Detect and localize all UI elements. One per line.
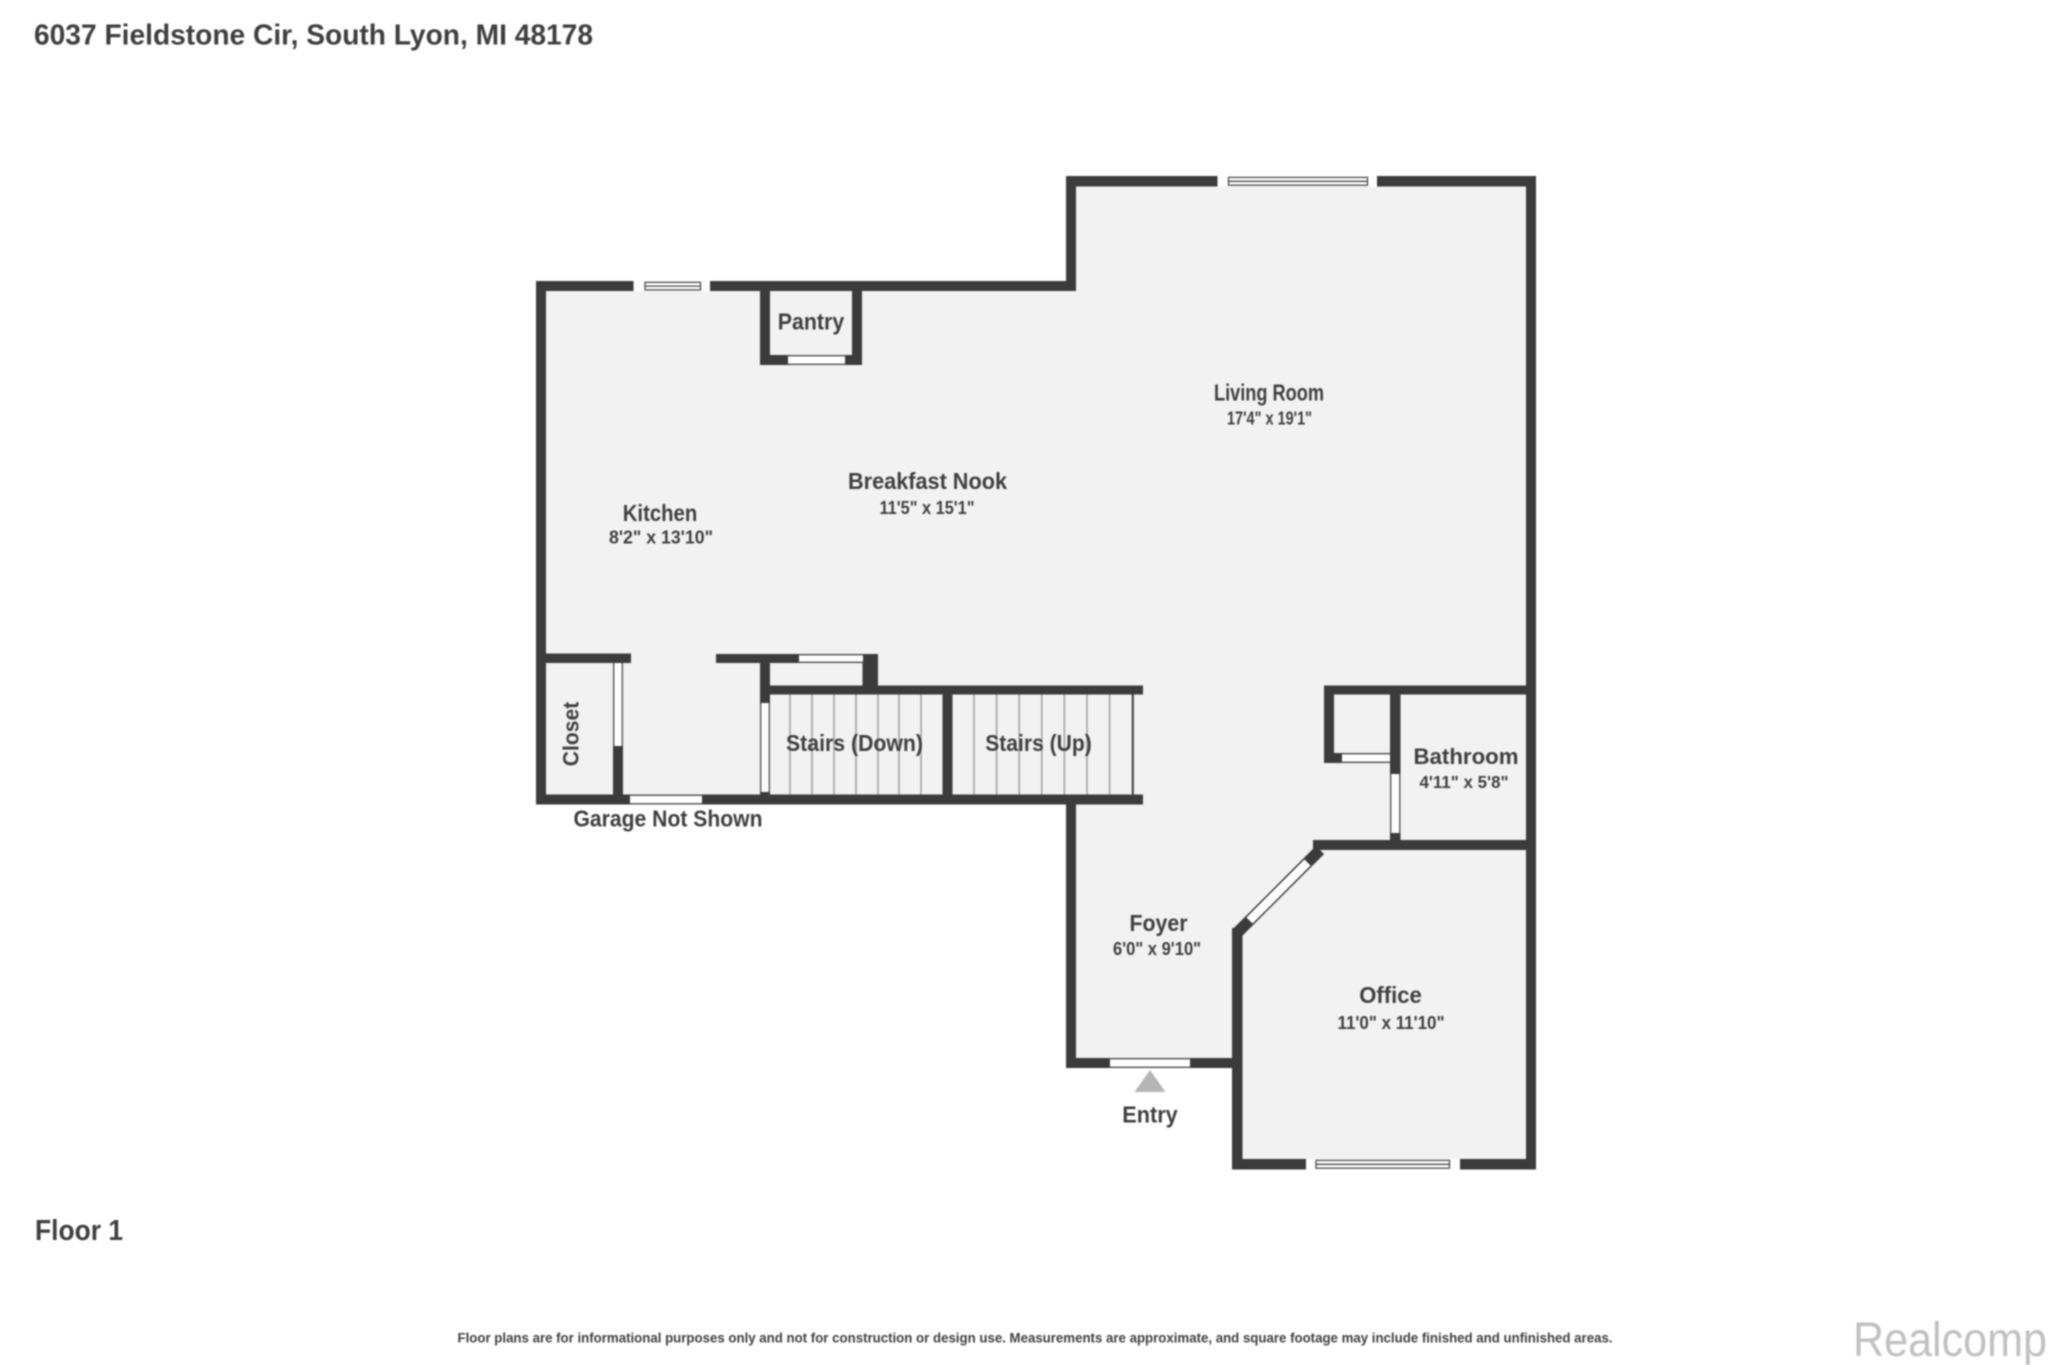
svg-text:Pantry: Pantry — [778, 308, 845, 334]
svg-text:Garage Not Shown: Garage Not Shown — [574, 806, 763, 832]
svg-text:Closet: Closet — [559, 701, 584, 766]
svg-text:Entry: Entry — [1122, 1102, 1178, 1128]
svg-text:Living Room: Living Room — [1214, 380, 1324, 406]
svg-text:Stairs (Up): Stairs (Up) — [985, 730, 1092, 756]
svg-text:Kitchen: Kitchen — [623, 500, 698, 526]
svg-text:8'2" x 13'10": 8'2" x 13'10" — [609, 528, 713, 548]
svg-text:Floor 1: Floor 1 — [35, 1215, 123, 1247]
svg-text:6037 Fieldstone Cir, South Lyo: 6037 Fieldstone Cir, South Lyon, MI 4817… — [34, 20, 593, 52]
svg-text:Bathroom: Bathroom — [1414, 744, 1519, 769]
svg-text:17'4" x 19'1": 17'4" x 19'1" — [1227, 409, 1312, 429]
svg-text:6'0" x 9'10": 6'0" x 9'10" — [1113, 939, 1201, 959]
svg-text:11'5" x 15'1": 11'5" x 15'1" — [880, 498, 975, 518]
svg-text:Breakfast Nook: Breakfast Nook — [848, 468, 1007, 494]
svg-text:11'0" x 11'10": 11'0" x 11'10" — [1338, 1013, 1445, 1033]
svg-text:Realcomp: Realcomp — [1853, 1314, 2047, 1365]
svg-text:Foyer: Foyer — [1130, 910, 1188, 936]
svg-text:Office: Office — [1359, 982, 1422, 1008]
svg-text:4'11" x 5'8": 4'11" x 5'8" — [1420, 772, 1509, 792]
svg-text:Floor plans are for informatio: Floor plans are for informational purpos… — [458, 1331, 1613, 1347]
svg-text:Stairs (Down): Stairs (Down) — [786, 730, 923, 756]
